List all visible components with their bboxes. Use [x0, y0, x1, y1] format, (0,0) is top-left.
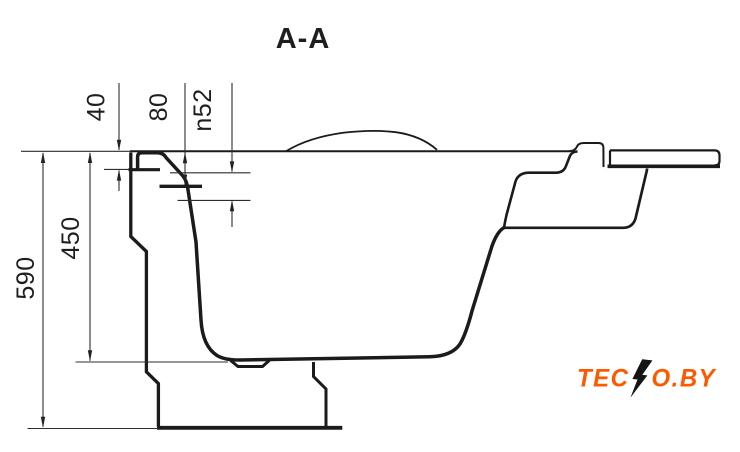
logo-text-right: O.BY: [652, 364, 717, 393]
outer-wall-left: [131, 153, 159, 427]
logo-text-left: TEC: [577, 364, 630, 393]
dimension-arrows: [41, 140, 234, 428]
arrow-80-up: [183, 152, 187, 163]
pedestal-wall-right: [314, 362, 327, 428]
lightning-bolt-icon: [629, 358, 653, 400]
rim-flange-outline: [610, 150, 720, 165]
arrow-590-top: [41, 152, 45, 163]
arrow-n52-up: [230, 200, 234, 211]
dim-label-n52: n52: [189, 88, 217, 131]
arrow-40-up: [117, 170, 121, 181]
deck-hump-curve: [286, 131, 437, 151]
dim-label-590: 590: [12, 256, 40, 299]
tecno-logo: TEC O.BY: [577, 358, 716, 400]
dim-label-80: 80: [145, 93, 173, 122]
arrow-590-bottom: [41, 417, 45, 428]
tub-inner-profile: [138, 153, 504, 360]
extension-lines: [21, 151, 251, 428]
dim-label-40: 40: [83, 93, 111, 122]
arrow-450-bottom: [88, 350, 92, 361]
rim-top-line: [130, 143, 604, 167]
section-title: A-A: [276, 23, 331, 55]
dim-label-450: 450: [57, 216, 85, 259]
arrow-40-down: [117, 140, 121, 151]
arrow-n52-down: [230, 161, 234, 172]
arrow-450-top: [88, 152, 92, 163]
seat-edge-line: [504, 169, 647, 228]
armrest-ledge-line: [504, 152, 578, 228]
drawing-canvas: A-A: [0, 0, 740, 452]
